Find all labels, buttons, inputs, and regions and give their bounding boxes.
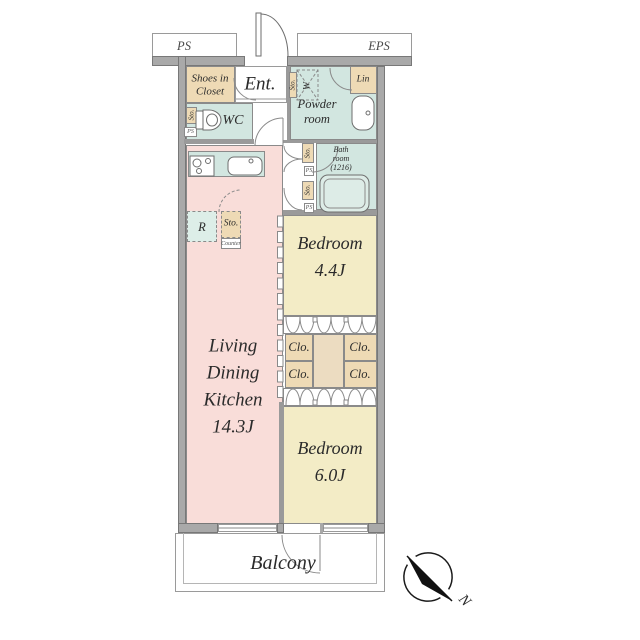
label-bedroom60-line2: 6.0J	[315, 466, 346, 484]
wall-powder-bottom	[283, 140, 377, 143]
room-ldk	[186, 145, 283, 524]
wall-right	[377, 66, 385, 533]
label-sto-corridor-2: Sto.	[305, 185, 312, 196]
label-ldk-line4: 14.3J	[212, 418, 254, 437]
wall-ldk-bedroom6	[279, 402, 284, 523]
label-balcony: Balcony	[250, 553, 316, 573]
label-shoes-line1: Shoes in	[192, 74, 229, 85]
label-bedroom44-line1: Bedroom	[297, 234, 362, 252]
label-clo-tl: Clo.	[288, 341, 309, 354]
label-counter: Counter	[221, 241, 241, 247]
label-clo-tr: Clo.	[349, 341, 370, 354]
shaft-ps	[152, 33, 237, 56]
label-bedroom60-line1: Bedroom	[297, 439, 362, 457]
label-washer: W	[303, 82, 313, 90]
label-clo-bl: Clo.	[288, 368, 309, 381]
label-sto-powder: Sto.	[290, 80, 297, 91]
label-sto-wc: Sto.	[188, 110, 195, 121]
label-wc: WC	[223, 114, 244, 128]
wall-top-right	[287, 56, 412, 66]
label-sto-kitchen: Sto.	[224, 219, 239, 229]
entrance-door	[256, 13, 288, 56]
label-powder-line1: Powder	[298, 98, 337, 111]
floor-plan: PS EPS Shoes in Closet Ent. W Sto. Lin P…	[0, 0, 640, 640]
label-ldk-line1: Living	[209, 337, 258, 356]
kitchen-counter	[188, 151, 265, 177]
label-compass-north: N	[455, 592, 473, 609]
label-bath-line3: (1216)	[330, 164, 351, 172]
wall-bedroom44-top	[283, 210, 377, 215]
hall-door	[255, 118, 283, 146]
label-ps: PS	[177, 40, 191, 53]
label-lin: Lin	[357, 75, 370, 85]
wall-top-left	[152, 56, 245, 66]
label-entrance: Ent.	[244, 75, 275, 94]
label-powder-line2: room	[304, 113, 330, 126]
label-ps-corridor-2: PS	[306, 205, 313, 211]
label-bath-line1: Bath	[333, 146, 348, 154]
wall-bottom-2	[277, 523, 284, 533]
label-ldk-line2: Dining	[207, 364, 260, 383]
window-bedroom	[323, 524, 368, 532]
closet-cell-middle	[313, 334, 344, 388]
closet-fold-strip-bottom	[283, 388, 377, 406]
label-bedroom44-line2: 4.4J	[315, 261, 346, 279]
label-ps-corridor-1: PS	[306, 168, 313, 174]
label-sto-corridor-1: Sto.	[305, 148, 312, 159]
label-shoes-line2: Closet	[196, 87, 224, 98]
label-fridge: R	[198, 221, 206, 234]
shaft-eps	[297, 33, 412, 56]
wall-wc-bottom	[184, 139, 254, 144]
sto-doors-corridor	[284, 146, 302, 210]
wall-bottom-4	[368, 523, 385, 533]
label-bath-line2: room	[333, 155, 350, 163]
compass-icon	[404, 553, 452, 601]
label-clo-br: Clo.	[349, 368, 370, 381]
window-ldk	[218, 524, 277, 532]
label-ps-wc: PS	[187, 129, 194, 135]
wall-bottom-1	[178, 523, 218, 533]
label-ldk-line3: Kitchen	[203, 391, 262, 410]
closet-fold-strip-top	[283, 316, 377, 334]
label-eps: EPS	[368, 40, 390, 53]
